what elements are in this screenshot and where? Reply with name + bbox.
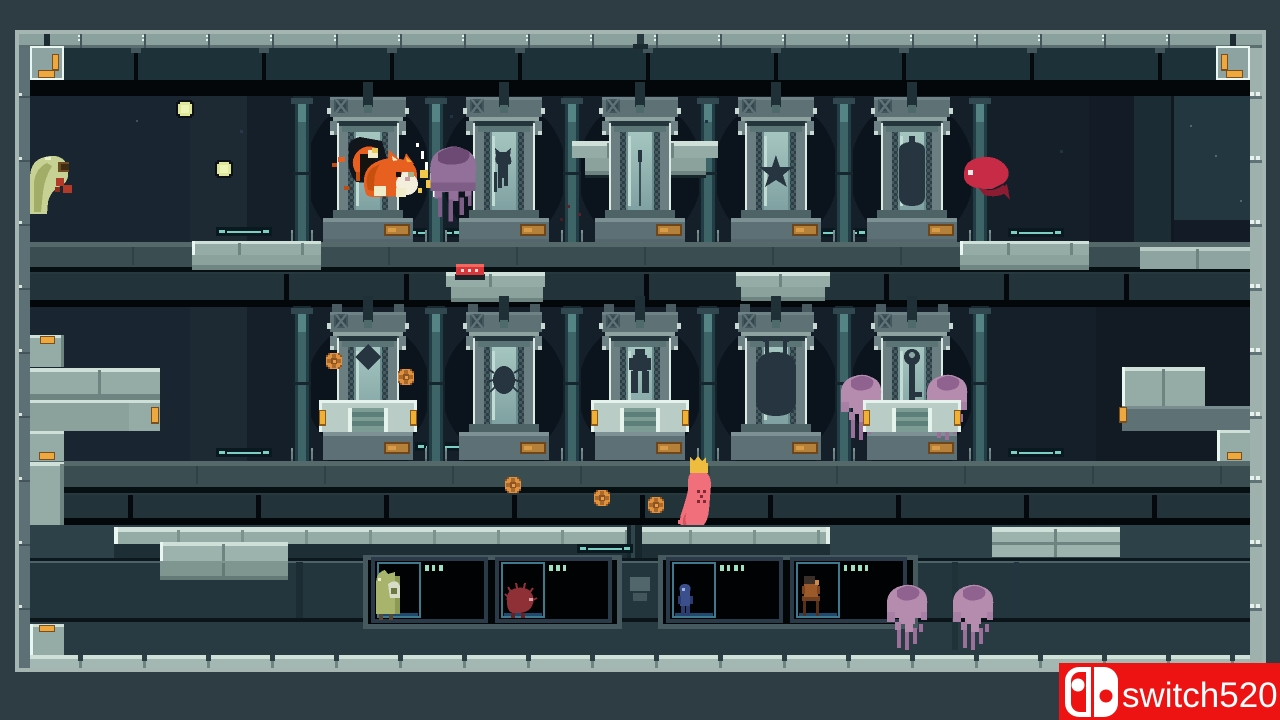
svg-text:switch520: switch520 bbox=[1122, 676, 1278, 715]
